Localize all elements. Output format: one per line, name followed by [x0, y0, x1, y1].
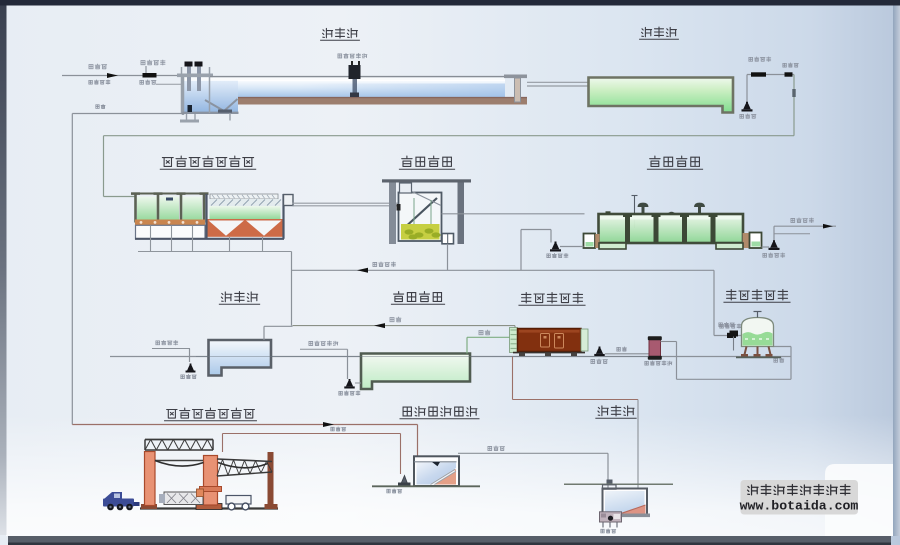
svg-text:www.botaida.com: www.botaida.com — [740, 499, 859, 514]
